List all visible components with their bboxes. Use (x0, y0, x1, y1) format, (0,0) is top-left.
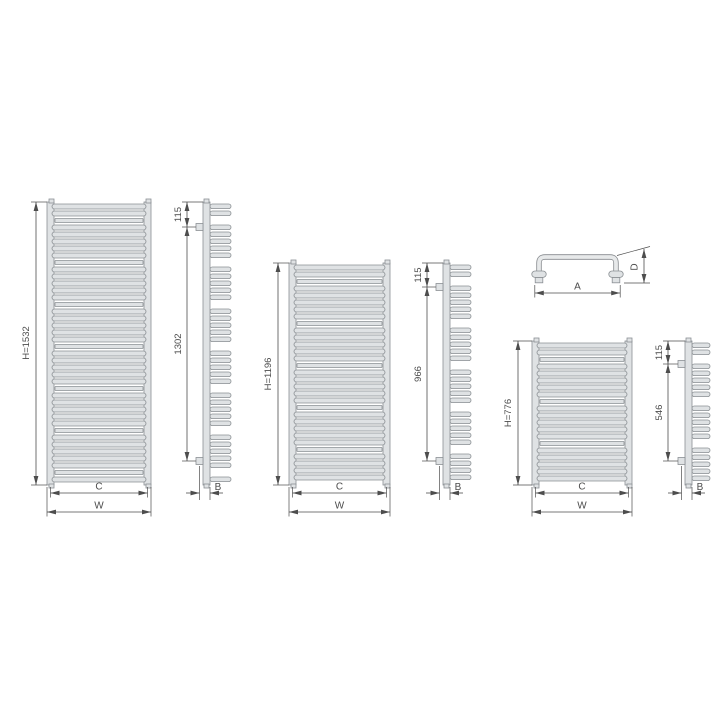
tube-finger (210, 477, 231, 482)
rad3-collector-cap (534, 338, 539, 342)
radiator-tube (52, 232, 146, 237)
tube-finger (210, 351, 231, 356)
radiator-tube (294, 293, 385, 298)
radiator-3-side-view: 115 546 B (654, 338, 710, 500)
rad1-depth-label: B (215, 482, 222, 493)
radiator-tube (52, 274, 146, 279)
tube-finger (450, 419, 471, 424)
radiator-tube (55, 345, 143, 349)
radiator-tube (52, 435, 146, 440)
radiator-tube (52, 365, 146, 370)
tube-finger (692, 455, 710, 460)
tube-finger (210, 337, 231, 342)
tube-finger (450, 440, 471, 445)
tube-finger (210, 323, 231, 328)
radiator-tube (52, 309, 146, 314)
handle-end-ferrule (535, 277, 543, 282)
radiator-tube (537, 371, 627, 376)
radiator-tube (52, 414, 146, 419)
radiator-1-side-view: 115 1302 B (173, 199, 231, 500)
rad2-overall-width-label: W (335, 501, 345, 512)
rad1-bracket-offset-label: 115 (173, 207, 184, 222)
radiator-tube (52, 253, 146, 258)
tube-finger (450, 461, 471, 466)
radiator-tube (297, 406, 382, 410)
tube-finger (450, 454, 471, 459)
radiator-tube (294, 342, 385, 347)
tube-finger (210, 267, 231, 272)
radiator-tube (537, 434, 627, 439)
radiator-tube (52, 204, 146, 209)
radiator-tube (52, 372, 146, 377)
tube-finger (210, 288, 231, 293)
radiator-tube (52, 393, 146, 398)
radiator-tube (537, 378, 627, 383)
rad1-collector-cap (146, 199, 151, 203)
handle-depth-label: D (630, 263, 641, 270)
tube-finger (450, 468, 471, 473)
tube-finger (450, 293, 471, 298)
radiator-tube (52, 246, 146, 251)
tube-finger (210, 435, 231, 440)
tube-finger (210, 456, 231, 461)
rad2-side-cap (444, 260, 449, 264)
radiator-tube (55, 387, 143, 391)
radiator-tube (294, 286, 385, 291)
tube-finger (210, 274, 231, 279)
radiator-tube (294, 272, 385, 277)
radiator-3-front-view: H=776 C W (503, 338, 632, 517)
radiator-tube (52, 211, 146, 216)
rad2-side-cap (444, 484, 449, 488)
rad2-collector-cap (385, 484, 390, 488)
radiator-tube (55, 219, 143, 223)
tube-finger (210, 281, 231, 286)
rad1-side-collector-plate (203, 202, 210, 485)
radiator-tube (537, 343, 627, 348)
tube-finger (692, 462, 710, 467)
radiator-tube (294, 307, 385, 312)
tube-finger (210, 253, 231, 258)
tube-finger (450, 328, 471, 333)
tube-finger (450, 286, 471, 291)
tube-finger (210, 379, 231, 384)
radiator-tube (52, 442, 146, 447)
radiator-tube (537, 364, 627, 369)
tube-finger (692, 385, 710, 390)
radiator-tube (294, 433, 385, 438)
tube-finger (210, 442, 231, 447)
radiator-tube (52, 456, 146, 461)
radiator-tube (297, 280, 382, 284)
rad3-tube-array (537, 343, 627, 481)
radiator-tube (540, 400, 624, 404)
tube-finger (210, 232, 231, 237)
tube-finger (450, 398, 471, 403)
rad1-wall-bracket-top (196, 224, 203, 231)
radiator-tube (55, 471, 143, 475)
radiator-tube (52, 407, 146, 412)
radiator-2-front-view: H=1196 C W (263, 260, 390, 517)
rad2-bracket-offset-label: 115 (413, 267, 424, 282)
rad1-collector-cap (49, 484, 54, 488)
tube-finger (450, 377, 471, 382)
tube-finger (692, 371, 710, 376)
radiator-2-side-view: 115 966 B (413, 260, 471, 500)
rad1-tube-array (52, 204, 146, 482)
radiator-tube (52, 421, 146, 426)
radiator-tube (55, 261, 143, 265)
rad3-collector-cap (627, 338, 632, 342)
radiator-tube (294, 356, 385, 361)
radiator-dimension-diagram: H=1532 C W 115 1302 B (0, 0, 720, 720)
tube-finger (210, 463, 231, 468)
rad3-collector-cap (534, 484, 539, 488)
tube-finger (692, 343, 710, 348)
radiator-tube (294, 265, 385, 270)
rad3-side-collector-plate (685, 341, 692, 485)
rad2-collector-cap (291, 260, 296, 264)
radiator-tube (294, 300, 385, 305)
radiator-tube (294, 349, 385, 354)
radiator-tube (52, 316, 146, 321)
radiator-tube (294, 391, 385, 396)
radiator-tube (52, 463, 146, 468)
radiator-tube (294, 370, 385, 375)
radiator-tube (55, 303, 143, 307)
rad2-wall-bracket-top (436, 284, 443, 291)
radiator-tube (294, 461, 385, 466)
rad2-side-tube-fingers (450, 265, 471, 480)
rad1-wall-bracket-bottom (196, 458, 203, 465)
rad3-inner-width-label: C (578, 482, 585, 493)
handle-collar-left (532, 271, 546, 277)
radiator-tube (52, 337, 146, 342)
radiator-tube (294, 377, 385, 382)
handle-collar-right (609, 271, 623, 277)
tube-finger (692, 406, 710, 411)
tube-finger (210, 316, 231, 321)
rad1-inner-width-label: C (95, 482, 102, 493)
tube-finger (210, 365, 231, 370)
tube-finger (210, 421, 231, 426)
tube-finger (210, 211, 231, 216)
rad1-side-tube-fingers (210, 204, 231, 482)
rad1-collector-cap (146, 484, 151, 488)
tube-finger (692, 378, 710, 383)
tube-finger (210, 309, 231, 314)
radiator-tube (52, 267, 146, 272)
tube-finger (210, 330, 231, 335)
radiator-tube (537, 413, 627, 418)
tube-finger (450, 391, 471, 396)
rad2-collector-cap (291, 484, 296, 488)
radiator-tube (537, 462, 627, 467)
radiator-tube (537, 469, 627, 474)
radiator-tube (55, 429, 143, 433)
tube-finger (210, 414, 231, 419)
rad3-overall-width-label: W (577, 501, 587, 512)
radiator-tube (294, 475, 385, 480)
handle-end-ferrule (612, 277, 620, 282)
tube-finger (692, 434, 710, 439)
tube-finger (450, 475, 471, 480)
tube-finger (210, 295, 231, 300)
rad2-side-collector-plate (443, 263, 450, 485)
radiator-tube (537, 385, 627, 390)
rad2-wall-bracket-bottom (436, 458, 443, 465)
rad3-side-cap (686, 338, 691, 342)
radiator-tube (294, 314, 385, 319)
rad3-bracket-offset-label: 115 (654, 345, 665, 360)
radiator-tube (537, 427, 627, 432)
radiator-tube (52, 281, 146, 286)
radiator-tube (294, 440, 385, 445)
radiator-tube (294, 419, 385, 424)
rad3-collector-cap (627, 484, 632, 488)
tube-finger (450, 412, 471, 417)
rad3-side-cap (686, 484, 691, 488)
rad2-height-label: H=1196 (263, 358, 274, 391)
rad1-height-label: H=1532 (21, 326, 32, 360)
tube-finger (450, 384, 471, 389)
radiator-tube (294, 454, 385, 459)
tube-finger (210, 358, 231, 363)
radiator-tube (294, 412, 385, 417)
rad3-bracket-span-label: 546 (654, 405, 665, 421)
radiator-tube (52, 358, 146, 363)
rad3-side-tube-fingers (692, 343, 710, 481)
drawing-canvas: H=1532 C W 115 1302 B (0, 0, 720, 720)
rad3-height-label: H=776 (503, 399, 514, 427)
tube-finger (450, 265, 471, 270)
rad3-wall-bracket-top (678, 361, 685, 368)
rad1-side-cap (204, 484, 209, 488)
radiator-tube (540, 442, 624, 446)
radiator-tube (52, 323, 146, 328)
handle-tube-outline (539, 257, 616, 281)
rad3-depth-label: B (697, 482, 704, 493)
handle-detail-view: A D (532, 247, 650, 298)
rad2-tube-array (294, 265, 385, 480)
radiator-tube (52, 239, 146, 244)
handle-tube-body (539, 257, 616, 281)
extension-line (617, 247, 650, 256)
radiator-tube (297, 364, 382, 368)
rad1-overall-width-label: W (94, 501, 104, 512)
rad2-collector-cap (385, 260, 390, 264)
radiator-tube (52, 400, 146, 405)
radiator-tube (52, 295, 146, 300)
radiator-tube (52, 449, 146, 454)
tube-finger (692, 476, 710, 481)
tube-finger (450, 307, 471, 312)
radiator-tube (294, 468, 385, 473)
tube-finger (210, 407, 231, 412)
tube-finger (450, 300, 471, 305)
radiator-tube (52, 288, 146, 293)
tube-finger (450, 356, 471, 361)
radiator-tube (52, 379, 146, 384)
tube-finger (450, 433, 471, 438)
radiator-tube (537, 406, 627, 411)
tube-finger (450, 335, 471, 340)
rad1-collector-cap (49, 199, 54, 203)
radiator-tube (294, 398, 385, 403)
handle-width-label: A (574, 282, 581, 293)
radiator-tube (297, 448, 382, 452)
rad1-bracket-span-label: 1302 (173, 333, 184, 354)
radiator-tube (540, 358, 624, 362)
tube-finger (210, 449, 231, 454)
radiator-tube (537, 476, 627, 481)
tube-finger (450, 370, 471, 375)
radiator-tube (52, 330, 146, 335)
tube-finger (692, 469, 710, 474)
radiator-tube (537, 392, 627, 397)
tube-finger (692, 392, 710, 397)
radiator-tube (294, 426, 385, 431)
radiator-tube (52, 225, 146, 230)
tube-finger (210, 400, 231, 405)
radiator-tube (294, 328, 385, 333)
radiator-tube (537, 448, 627, 453)
radiator-tube (294, 335, 385, 340)
radiator-tube (537, 420, 627, 425)
tube-finger (692, 420, 710, 425)
tube-finger (450, 426, 471, 431)
rad3-wall-bracket-bottom (678, 458, 685, 465)
tube-finger (210, 393, 231, 398)
tube-finger (210, 225, 231, 230)
tube-finger (692, 413, 710, 418)
tube-finger (210, 372, 231, 377)
rad2-bracket-span-label: 966 (413, 366, 424, 382)
tube-finger (210, 204, 231, 209)
tube-finger (692, 350, 710, 355)
tube-finger (210, 246, 231, 251)
rad2-depth-label: B (455, 482, 462, 493)
radiator-tube (537, 350, 627, 355)
tube-finger (210, 239, 231, 244)
tube-finger (450, 349, 471, 354)
tube-finger (450, 314, 471, 319)
rad2-inner-width-label: C (336, 482, 343, 493)
tube-finger (692, 364, 710, 369)
tube-finger (692, 427, 710, 432)
tube-finger (450, 272, 471, 277)
tube-finger (692, 448, 710, 453)
radiator-tube (294, 384, 385, 389)
radiator-tube (297, 322, 382, 326)
radiator-1-front-view: H=1532 C W (21, 199, 151, 517)
radiator-tube (537, 455, 627, 460)
rad1-side-cap (204, 199, 209, 203)
tube-finger (450, 342, 471, 347)
radiator-tube (52, 351, 146, 356)
